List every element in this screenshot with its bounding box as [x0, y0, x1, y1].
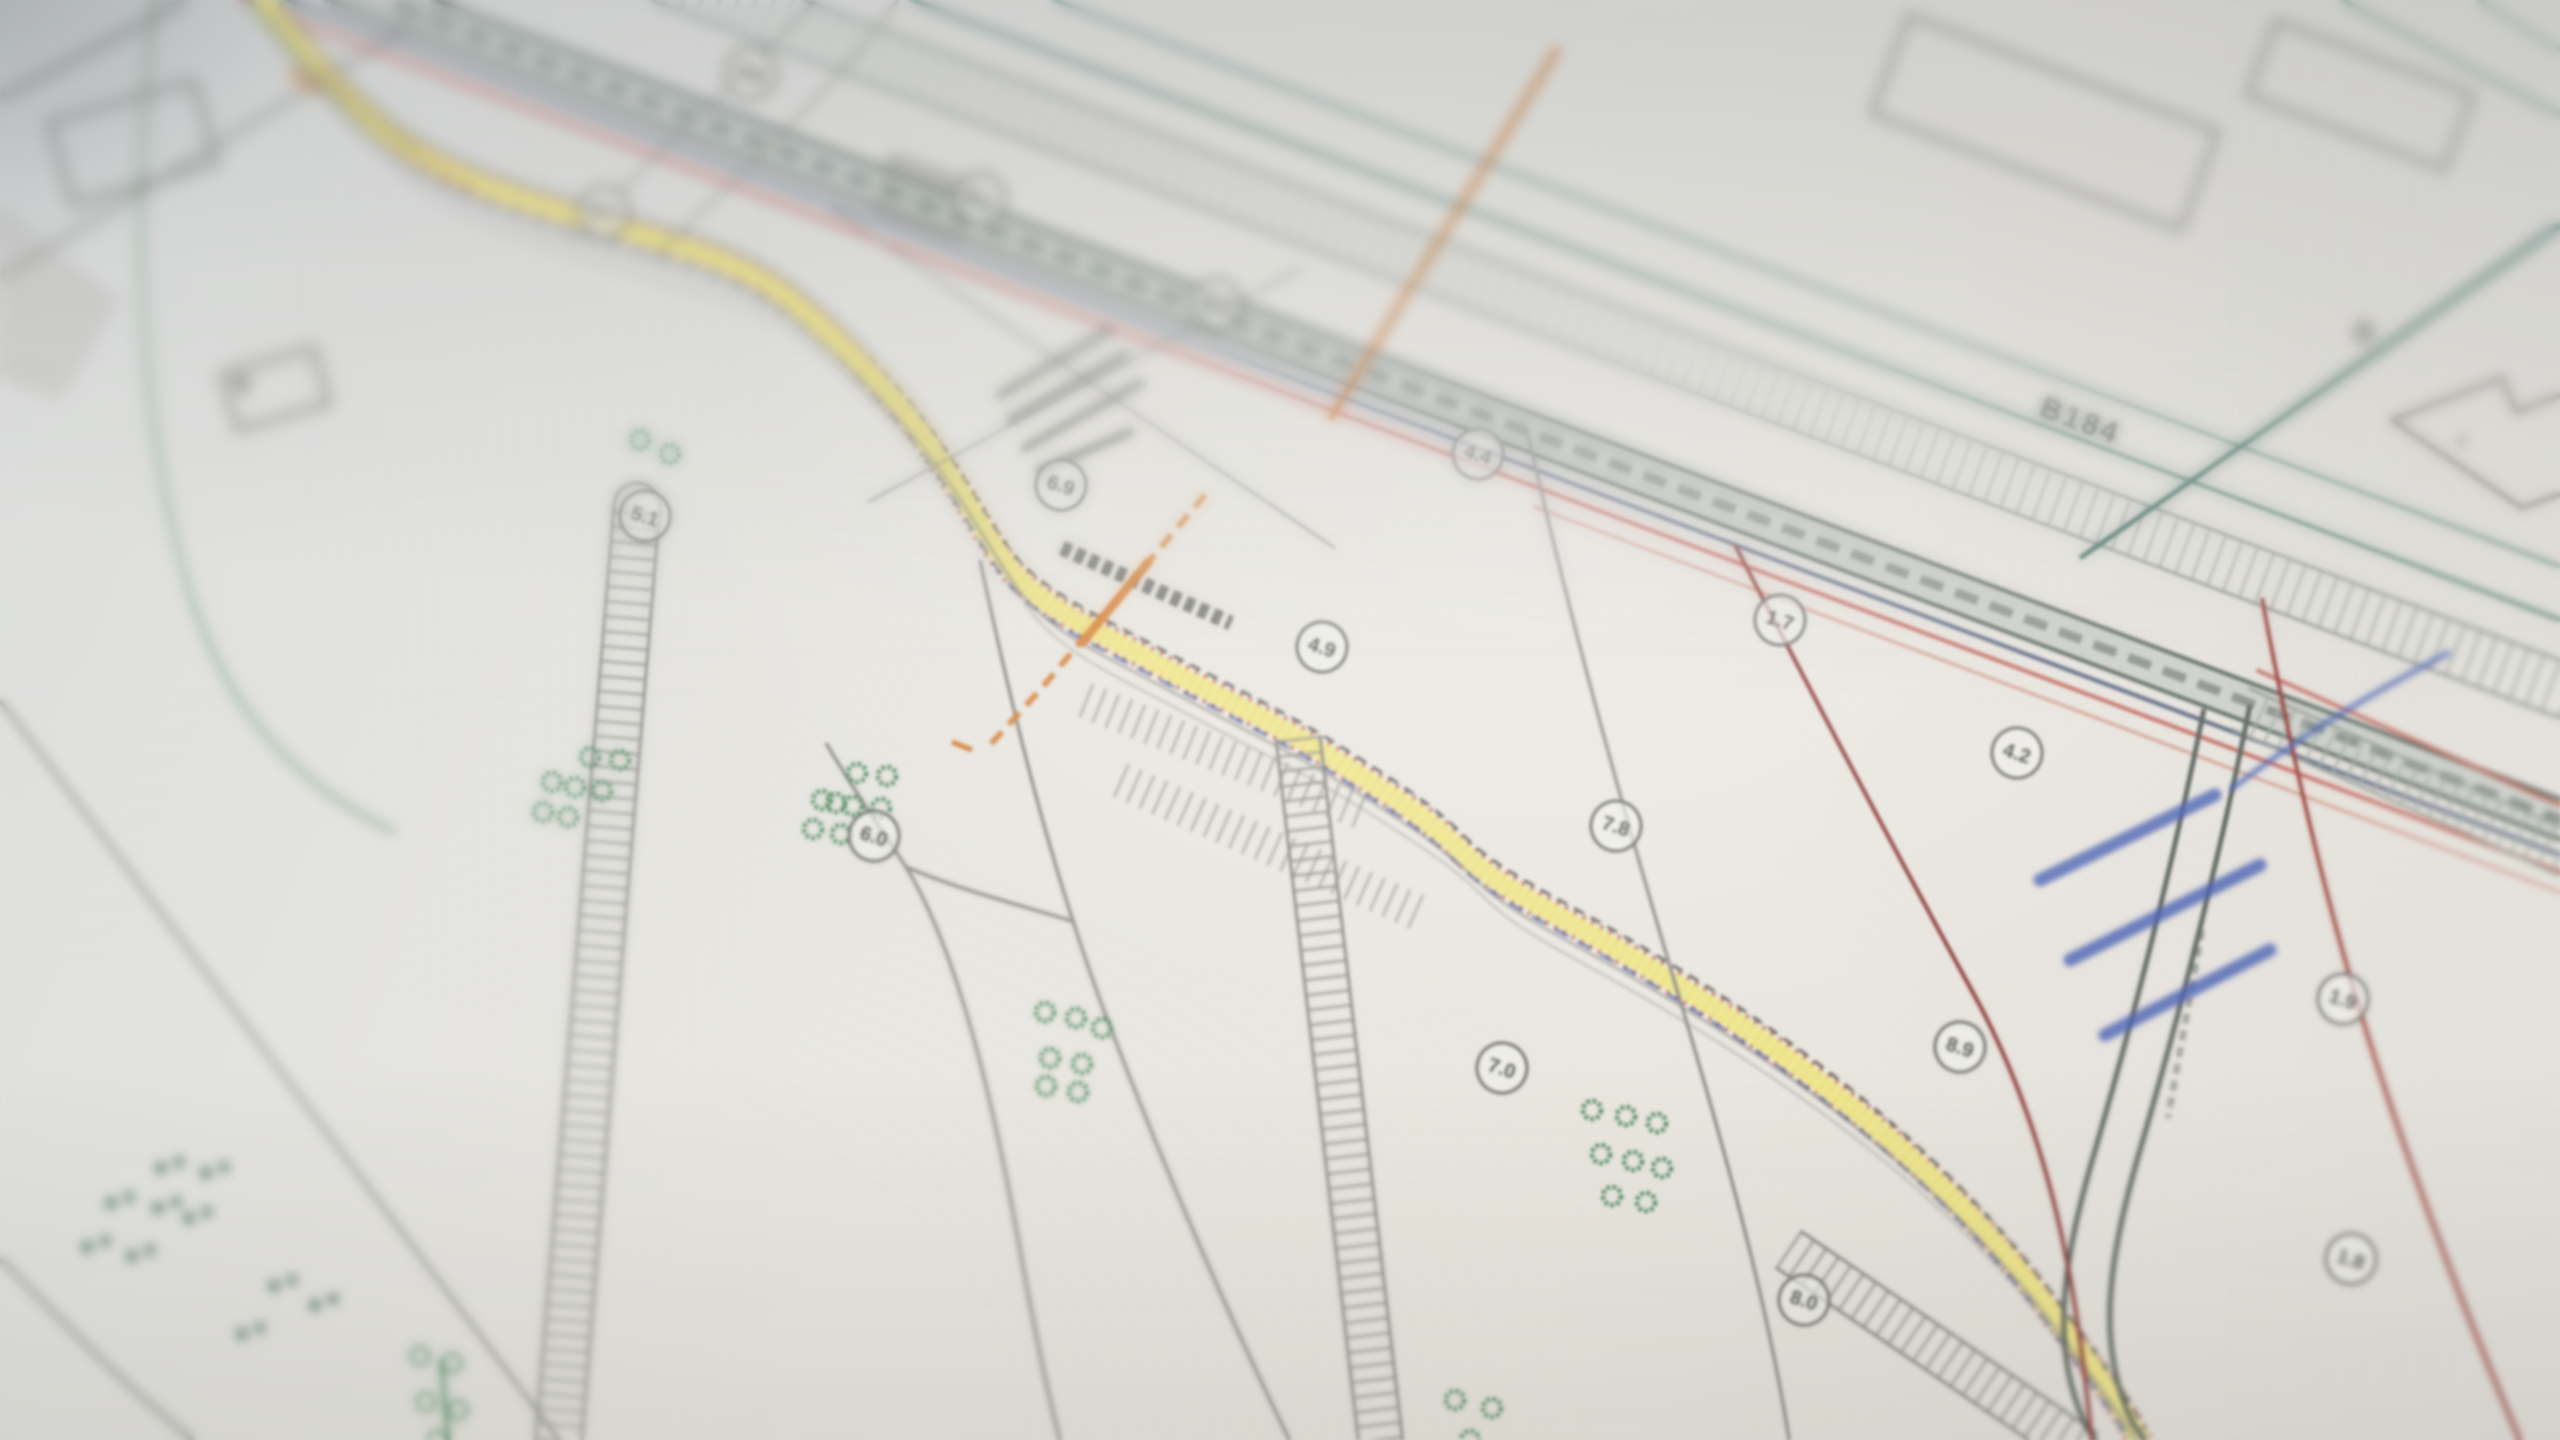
top-right-buildings: [1872, 15, 2472, 229]
pink-line: [1533, 506, 2560, 911]
teal-boundary-line: [2080, 225, 2560, 558]
ladder-hatch-icon: [1776, 1231, 2098, 1440]
photographed-site-plan: B184 D 4: [0, 0, 2560, 1440]
highlighted-secondary-road: [245, 0, 2166, 1440]
tree-cluster: [1583, 1101, 1671, 1211]
parcel-number-circle: 7.8: [1584, 794, 1647, 857]
building-outline: [1872, 15, 2218, 229]
field-boundary-curve: [0, 1258, 200, 1440]
plot-digit-label: 4: [2450, 426, 2472, 456]
tree-cluster: [631, 431, 679, 463]
top-left-buildings: [0, 0, 979, 832]
green-boundary-line: [441, 1360, 449, 1440]
parcel-number-circle: 4.2: [1985, 721, 2048, 784]
blue-dashed-line: [250, 1, 2139, 1440]
building-block: [0, 205, 120, 400]
track-edge-line: [2064, 709, 2204, 1440]
parcel-number-circle: 8.9: [1928, 1015, 1991, 1078]
orange-survey-line: [1330, 48, 1558, 420]
parcel-number-circle: 6.9: [1029, 453, 1092, 516]
building-outline: [2248, 21, 2473, 170]
building-outline: [2392, 378, 2560, 508]
site-plan-linework: B184 D 4: [0, 0, 2560, 1440]
parcel-number-circle: 1.8: [2319, 1227, 2382, 1290]
tree-cluster: [1446, 1391, 1501, 1440]
plot-letter-label: D: [2350, 315, 2380, 351]
pencil-note-smudge: [1000, 330, 1140, 470]
survey-point: [236, 378, 248, 390]
tree-cluster: [1036, 1003, 1111, 1101]
parcel-number-circle: 4.9: [1290, 615, 1353, 678]
parcel-number-circle: 5.1: [613, 484, 676, 547]
field-boundary-line: [0, 700, 563, 1440]
blue-service-line: [188, 0, 2560, 878]
tree-cluster: [411, 1347, 467, 1440]
parcel-number-circle: 4.6: [719, 41, 782, 104]
building-outline: [49, 81, 217, 204]
building-outline: [222, 348, 329, 430]
field-boundary-line: [0, 0, 188, 98]
vegetation: [82, 431, 1671, 1440]
parcel-number-circle: 1.7: [1748, 588, 1811, 651]
green-boundary-line: [2470, 0, 2560, 50]
tree-cluster: [534, 748, 629, 826]
green-boundary-line: [2332, 0, 2560, 115]
hatch-edge-line: [253, 0, 2560, 708]
orange-mark: [952, 742, 972, 750]
parcel-number-circle: 7.0: [1470, 1036, 1533, 1099]
scrub-dot-field: [82, 1158, 338, 1340]
ladder-hatch-icon: [535, 481, 661, 1440]
